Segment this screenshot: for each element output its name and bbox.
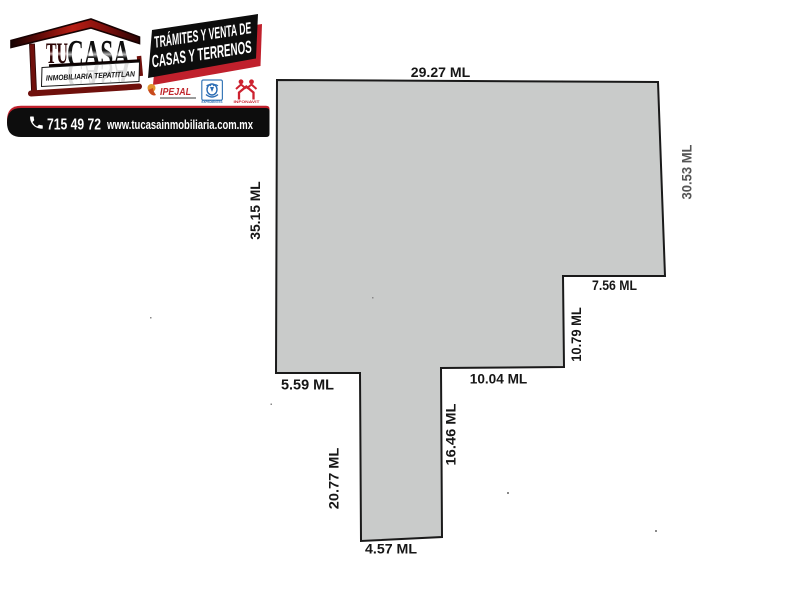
- svg-text:EXPEDIENTES: EXPEDIENTES: [202, 100, 224, 104]
- svg-text:29.27 ML: 29.27 ML: [411, 65, 471, 80]
- svg-text:4.57 ML: 4.57 ML: [365, 541, 417, 557]
- svg-text:715 49 72: 715 49 72: [47, 117, 101, 134]
- svg-text:10.79 ML: 10.79 ML: [569, 307, 584, 362]
- svg-text:5.59 ML: 5.59 ML: [281, 378, 334, 394]
- svg-text:16.46 ML: 16.46 ML: [444, 404, 459, 466]
- svg-text:IPEJAL: IPEJAL: [160, 86, 191, 98]
- svg-text:20.77 ML: 20.77 ML: [327, 448, 342, 510]
- svg-text:35.15 ML: 35.15 ML: [248, 181, 263, 240]
- svg-text:10.04 ML: 10.04 ML: [470, 370, 528, 386]
- svg-text:INFONAVIT: INFONAVIT: [234, 100, 261, 104]
- svg-text:30.53 ML: 30.53 ML: [680, 145, 695, 200]
- svg-text:7.56 ML: 7.56 ML: [592, 278, 637, 293]
- svg-text:www.tucasainmobiliaria.com.mx: www.tucasainmobiliaria.com.mx: [106, 117, 253, 132]
